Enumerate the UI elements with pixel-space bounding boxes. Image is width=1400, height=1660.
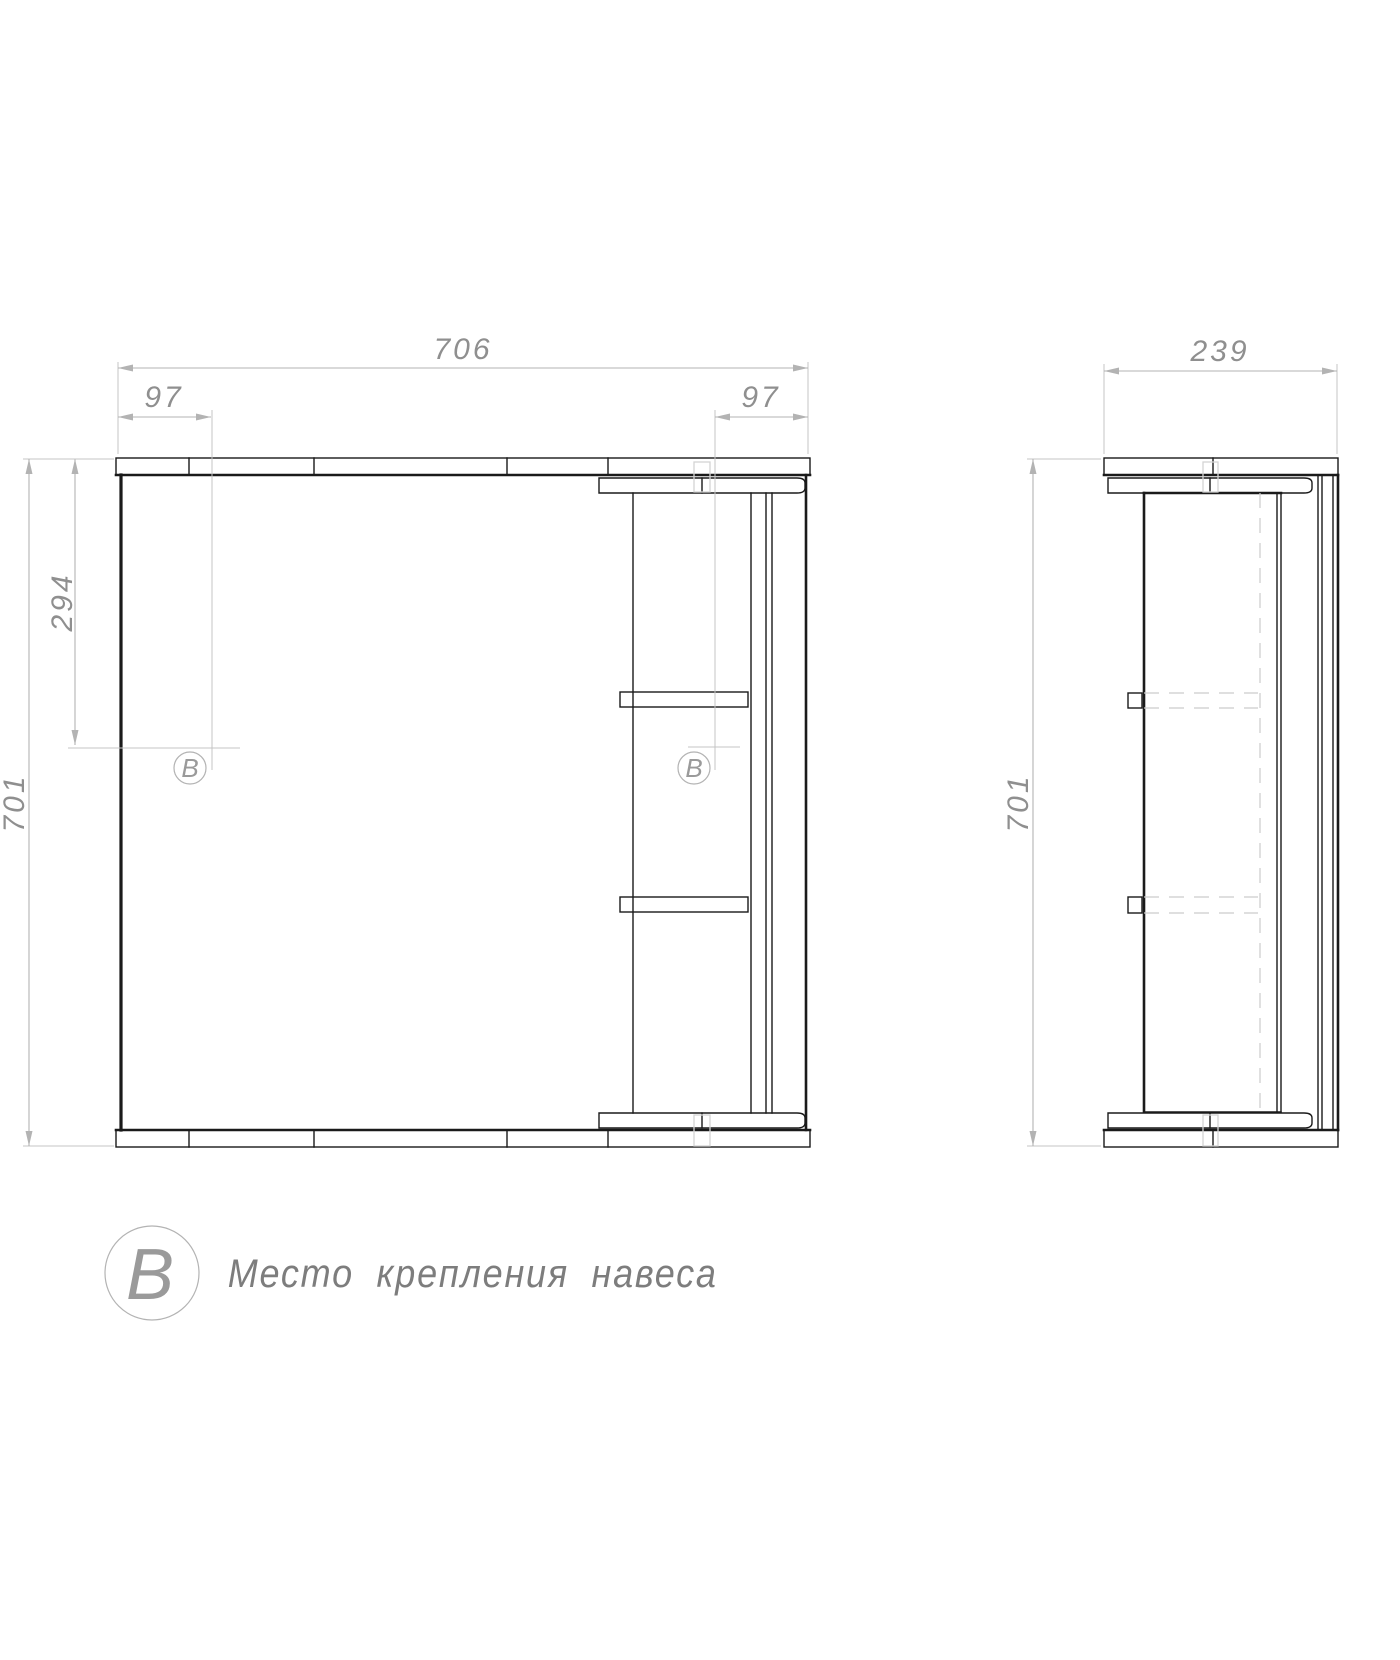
mount-marker-front-right: В — [678, 747, 740, 784]
dim-front-width: 706 — [118, 333, 808, 454]
side-shelf-pin-upper — [1128, 693, 1142, 708]
side-door-lines — [1318, 475, 1333, 1130]
dim-front-left-offset-value: 97 — [144, 381, 183, 414]
side-hidden-shelf-lines — [1144, 693, 1258, 913]
side-view — [1104, 458, 1338, 1147]
dim-mount-from-top: 294 — [46, 459, 240, 748]
side-shelf-pin-lower — [1128, 897, 1142, 913]
front-side-panel-lines — [751, 493, 772, 1113]
technical-drawing: 706 97 97 294 701 239 701 — [0, 0, 1400, 1660]
extension-lines — [1104, 364, 1337, 454]
side-bottom-panel — [1104, 1130, 1338, 1147]
extension-lines — [118, 362, 808, 454]
dim-side-height: 701 — [1002, 459, 1101, 1146]
drawing-sheet: 706 97 97 294 701 239 701 — [0, 0, 1400, 1660]
side-inner-panel-lines — [1277, 493, 1281, 1112]
extension-lines — [23, 459, 114, 1146]
front-top-panel-joints — [189, 458, 608, 475]
dim-front-width-value: 706 — [433, 333, 492, 366]
dim-side-depth-value: 239 — [1189, 335, 1249, 368]
dim-front-height: 701 — [0, 459, 114, 1146]
legend-label: Место крепления навеса — [228, 1252, 718, 1296]
dim-front-right-offset-value: 97 — [741, 381, 780, 414]
dim-side-height-value: 701 — [1002, 773, 1035, 832]
marker-symbol: В — [685, 753, 702, 783]
front-view — [116, 458, 810, 1147]
mount-marker-front-left: В — [174, 752, 206, 784]
extension-lines — [1027, 459, 1101, 1146]
legend-symbol: В — [126, 1235, 174, 1315]
front-shelf-lower — [620, 897, 748, 912]
dim-side-depth: 239 — [1104, 335, 1337, 454]
dim-mount-from-top-value: 294 — [46, 572, 79, 632]
dim-front-right-offset: 97 — [715, 381, 808, 770]
front-shelf-upper — [620, 692, 748, 707]
dim-front-left-offset: 97 — [118, 381, 212, 770]
dim-front-height-value: 701 — [0, 773, 31, 832]
side-top-panel — [1104, 458, 1338, 475]
marker-symbol: В — [181, 753, 198, 783]
legend: В Место крепления навеса — [105, 1226, 718, 1320]
front-bottom-panel — [116, 1130, 810, 1147]
front-top-panel — [116, 458, 810, 475]
front-bottom-panel-joints — [189, 1130, 608, 1147]
